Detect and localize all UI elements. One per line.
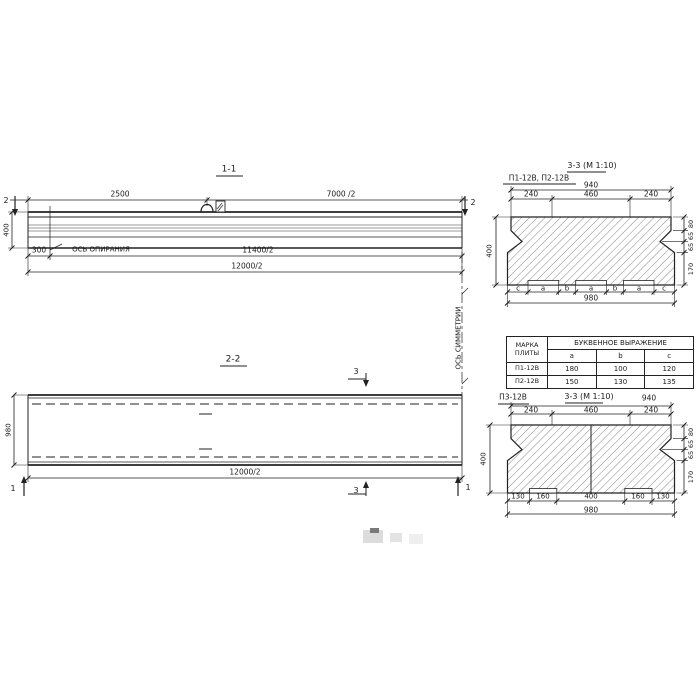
support-axis-label: ОСЬ ОПИРАНИЯ: [72, 247, 130, 254]
table-row: П1-12В 180 100 120: [507, 363, 694, 376]
dim-400-center: 400: [584, 494, 597, 501]
cut-1-label-right: 1: [465, 484, 470, 492]
scan-smudge: [370, 528, 379, 533]
table-header-mark: МАРКА ПЛИТЫ: [507, 337, 548, 363]
dim-400-label-v11: 400: [4, 223, 11, 236]
dim-7000-2-label: 7000 /2: [327, 190, 356, 198]
table-subheader-b: b: [596, 350, 645, 363]
dim-240-right-top: 240: [644, 190, 658, 198]
cell-p1-a: 180: [548, 363, 597, 376]
section-top-title: 3-3 (М 1:10): [567, 162, 616, 170]
cell-mark-p2: П2-12В: [507, 376, 548, 389]
cut-3-label-top: 3: [353, 368, 358, 376]
cell-p2-b: 130: [596, 376, 645, 389]
letter-a3: a: [637, 286, 641, 293]
letter-c2: c: [662, 286, 666, 293]
dim-130-left: 130: [511, 494, 524, 501]
dim-460-top: 460: [584, 190, 598, 198]
drawing-sheet: 1-1 2 2 2500 7000 /2 400 300 ОСЬ ОПИРАНИ…: [0, 0, 700, 700]
dim-940-bottom: 940: [642, 394, 656, 402]
dim-460-bottom: 460: [584, 406, 598, 414]
dim-980-label-v22: 980: [6, 423, 13, 436]
scan-smudge: [390, 533, 402, 542]
dim-240-left-top: 240: [524, 190, 538, 198]
view-1-1-title: 1-1: [222, 166, 237, 175]
letter-a1: a: [541, 286, 545, 293]
symmetry-axis-label: ОСЬ СИММЕТРИИ: [456, 306, 463, 369]
dim-80-bottom: 80: [688, 428, 695, 436]
dim-65b-top: 65: [688, 243, 695, 251]
dim-80-top: 80: [688, 220, 695, 228]
cell-p2-c: 135: [645, 376, 694, 389]
table-header-expression: БУКВЕННОЕ ВЫРАЖЕНИЕ: [548, 337, 694, 350]
cell-p2-a: 150: [548, 376, 597, 389]
dim-400-bottom-section: 400: [481, 452, 488, 465]
letter-expression-table: МАРКА ПЛИТЫ БУКВЕННОЕ ВЫРАЖЕНИЕ a b c П1…: [506, 336, 694, 389]
cut-1-label-left: 1: [10, 485, 15, 493]
cut-2-label-left: 2: [3, 197, 8, 205]
scan-smudge: [409, 534, 423, 544]
section-bottom-title: 3-3 (М 1:10): [564, 393, 613, 401]
dim-940-top: 940: [584, 181, 598, 189]
dim-980-bottom-section: 980: [584, 506, 598, 514]
dim-2500-label: 2500: [110, 190, 129, 198]
dim-12000-2-label-v11: 12000/2: [231, 262, 262, 270]
dim-980-top-section: 980: [584, 294, 598, 302]
cut-3-label-bottom: 3: [353, 487, 358, 495]
view-2-2: [12, 252, 469, 496]
section-3-3-p3: [486, 402, 688, 518]
dim-65b-bottom: 65: [688, 451, 695, 459]
dim-300-label: 300: [32, 246, 46, 254]
table-row: П2-12В 150 130 135: [507, 376, 694, 389]
dim-160-left: 160: [536, 494, 549, 501]
dim-160-right: 160: [631, 494, 644, 501]
section-top-subtitle: П1-12В, П2-12В: [509, 174, 569, 182]
dim-240-right-bottom: 240: [644, 406, 658, 414]
letter-c1: c: [516, 286, 520, 293]
cell-mark-p1: П1-12В: [507, 363, 548, 376]
cell-p1-c: 120: [645, 363, 694, 376]
dim-12000-2-label-v22: 12000/2: [229, 468, 260, 476]
letter-a2: a: [589, 286, 593, 293]
dim-170-top: 170: [688, 263, 695, 275]
table-subheader-a: a: [548, 350, 597, 363]
letter-b2: b: [613, 286, 617, 293]
dim-11400-2-label: 11400/2: [242, 246, 273, 254]
dim-400-top-section: 400: [487, 244, 494, 257]
cell-p1-b: 100: [596, 363, 645, 376]
section-bottom-subtitle: П3-12В: [499, 393, 527, 401]
dim-170-bottom: 170: [688, 471, 695, 483]
dim-65a-top: 65: [688, 232, 695, 240]
letter-b1: b: [565, 286, 569, 293]
dim-65a-bottom: 65: [688, 440, 695, 448]
table-subheader-c: c: [645, 350, 694, 363]
dim-130-right: 130: [656, 494, 669, 501]
view-2-2-title: 2-2: [226, 356, 241, 365]
cut-2-label-right: 2: [470, 199, 475, 207]
dim-240-left-bottom: 240: [524, 406, 538, 414]
